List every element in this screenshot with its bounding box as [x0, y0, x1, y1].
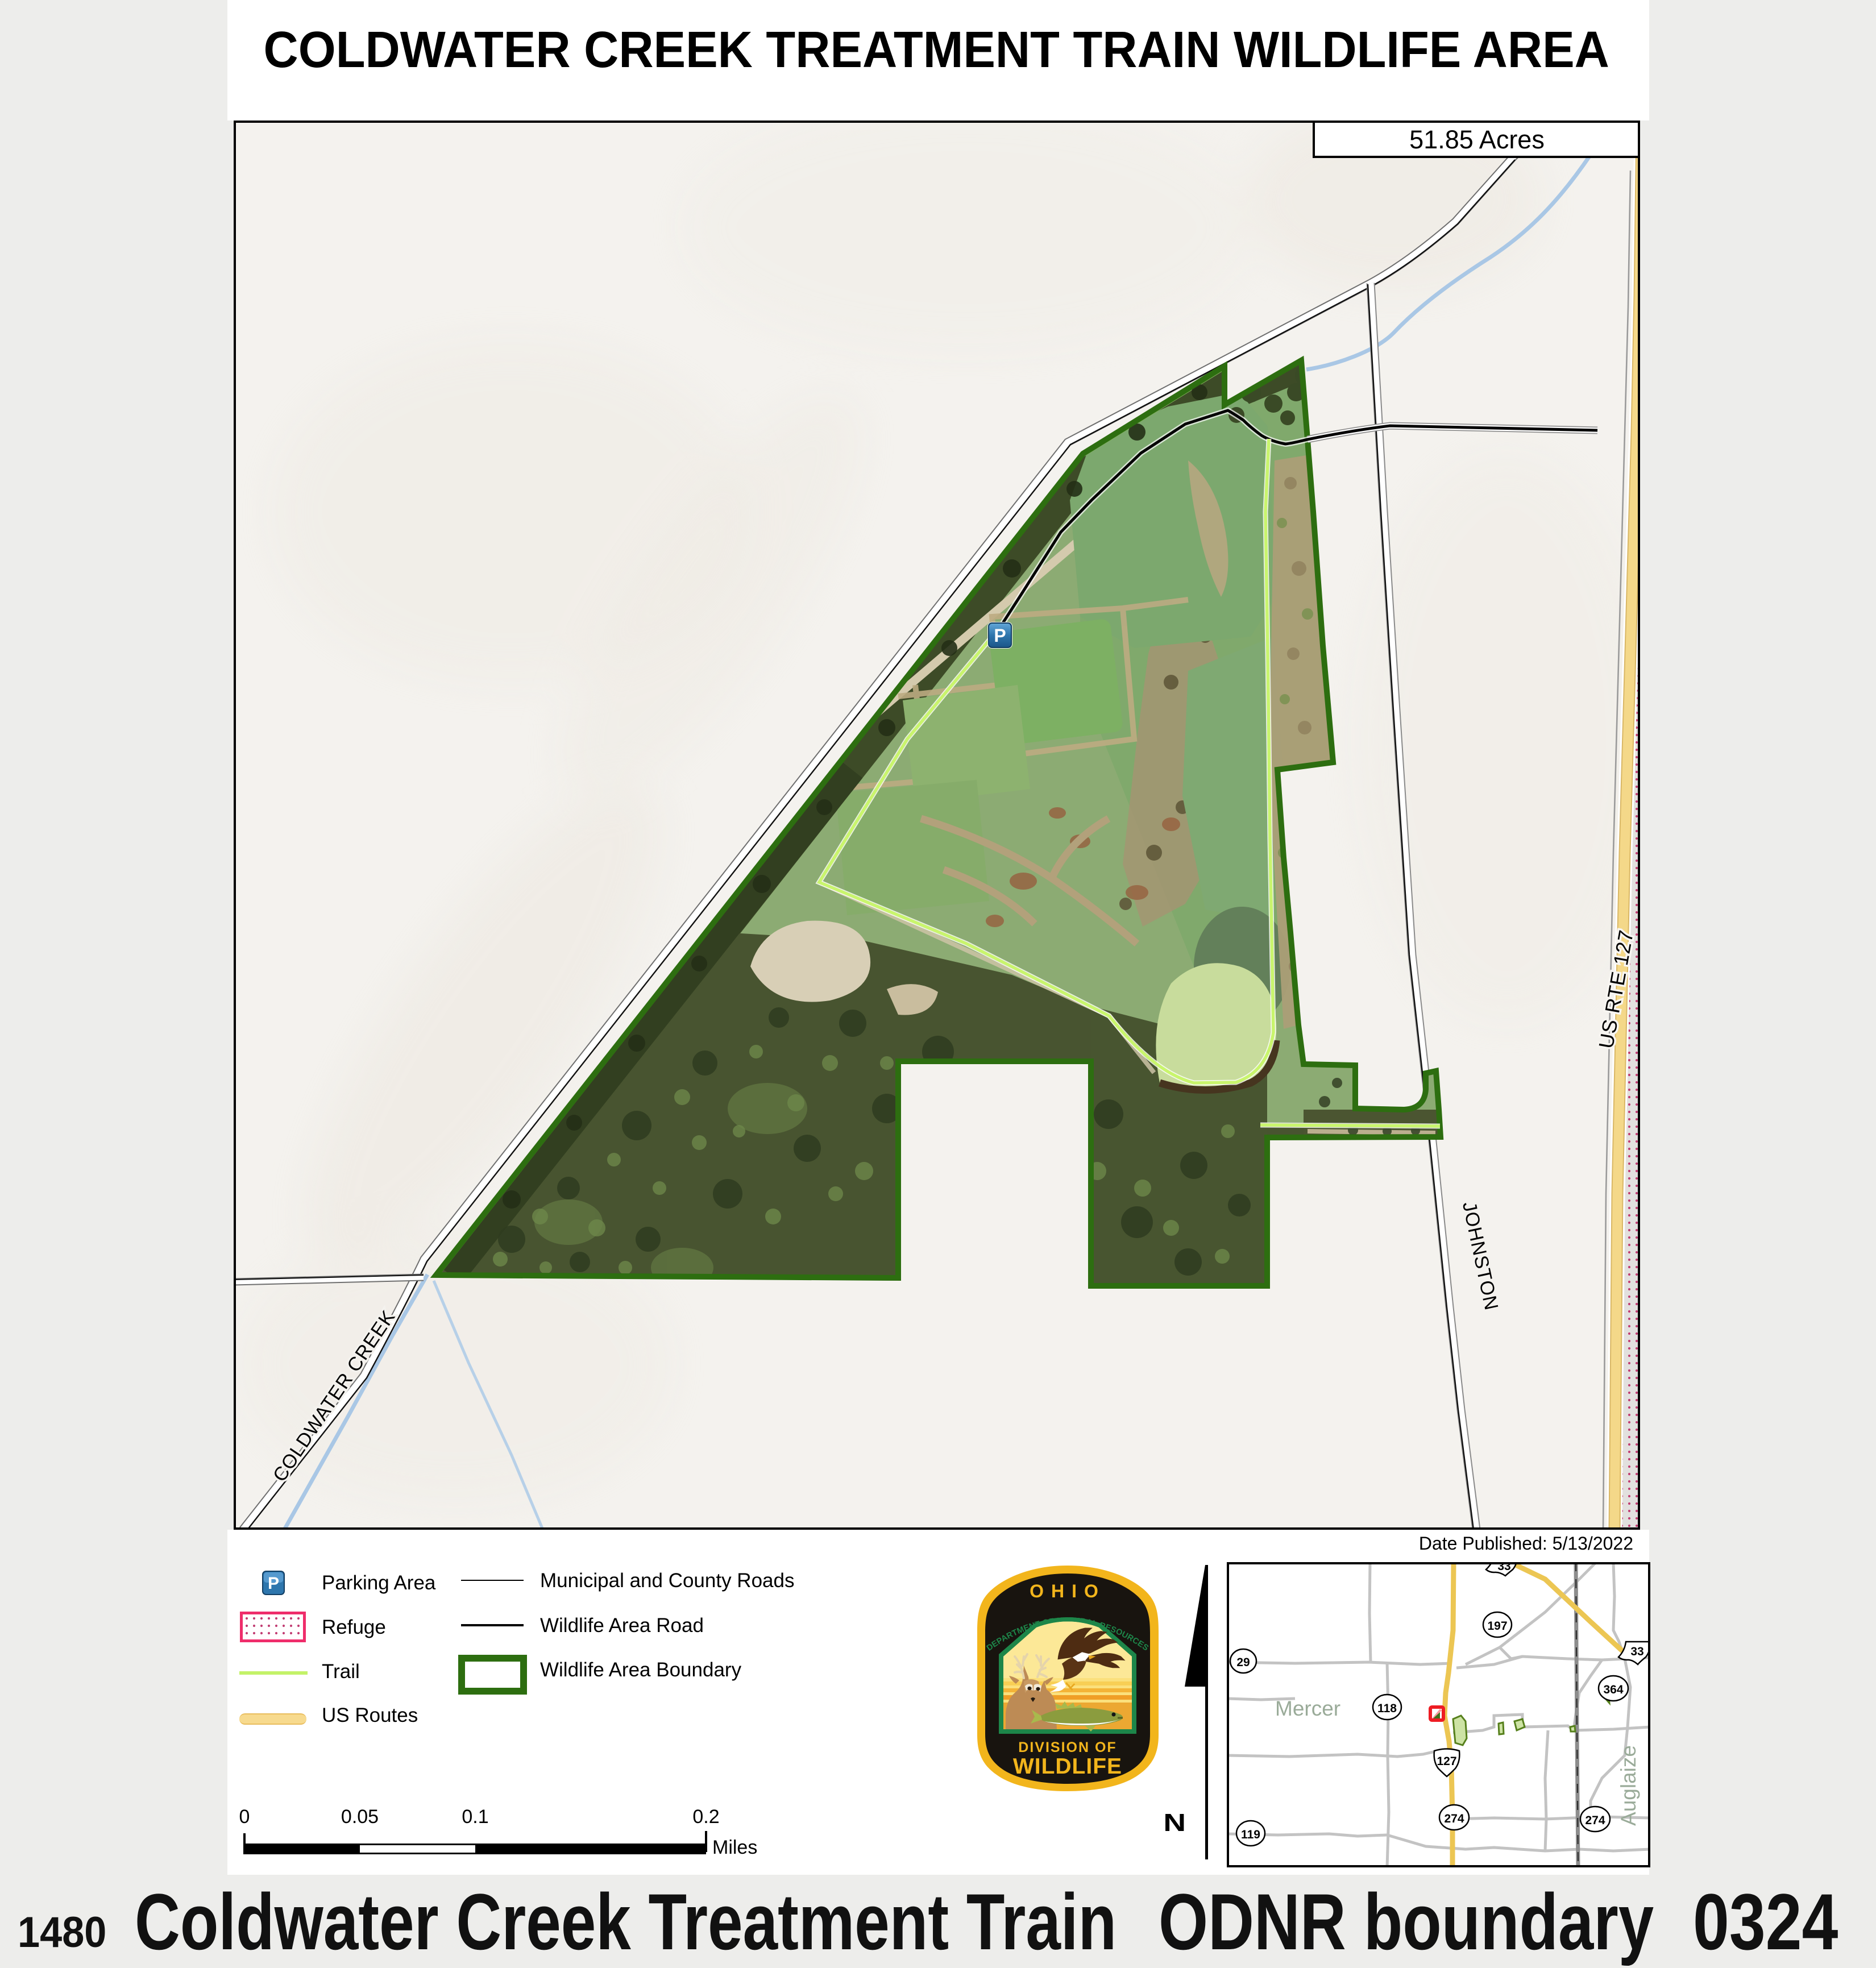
- svg-text:Mercer: Mercer: [1275, 1697, 1340, 1720]
- svg-text:P: P: [994, 625, 1006, 646]
- svg-text:Auglaize: Auglaize: [1617, 1745, 1640, 1826]
- svg-text:197: 197: [1487, 1620, 1507, 1633]
- svg-text:119: 119: [1241, 1828, 1260, 1841]
- svg-text:0: 0: [239, 1806, 250, 1828]
- svg-text:WILDLIFE: WILDLIFE: [1013, 1754, 1122, 1779]
- svg-text:51.85 Acres: 51.85 Acres: [1409, 125, 1545, 154]
- svg-text:127: 127: [1437, 1755, 1456, 1768]
- svg-text:118: 118: [1377, 1702, 1397, 1715]
- svg-text:274: 274: [1585, 1814, 1605, 1827]
- svg-text:364: 364: [1603, 1683, 1623, 1696]
- svg-text:P: P: [268, 1574, 279, 1593]
- svg-text:0.2: 0.2: [692, 1806, 719, 1828]
- svg-text:33: 33: [1630, 1645, 1643, 1658]
- svg-text:0.1: 0.1: [462, 1806, 488, 1828]
- svg-text:DIVISION OF: DIVISION OF: [1018, 1739, 1117, 1755]
- svg-text:274: 274: [1444, 1812, 1464, 1825]
- svg-text:OHIO: OHIO: [1030, 1581, 1106, 1601]
- svg-text:N: N: [1163, 1808, 1186, 1836]
- svg-text:Miles: Miles: [712, 1837, 757, 1858]
- svg-text:29: 29: [1236, 1656, 1250, 1669]
- svg-text:0.05: 0.05: [341, 1806, 379, 1828]
